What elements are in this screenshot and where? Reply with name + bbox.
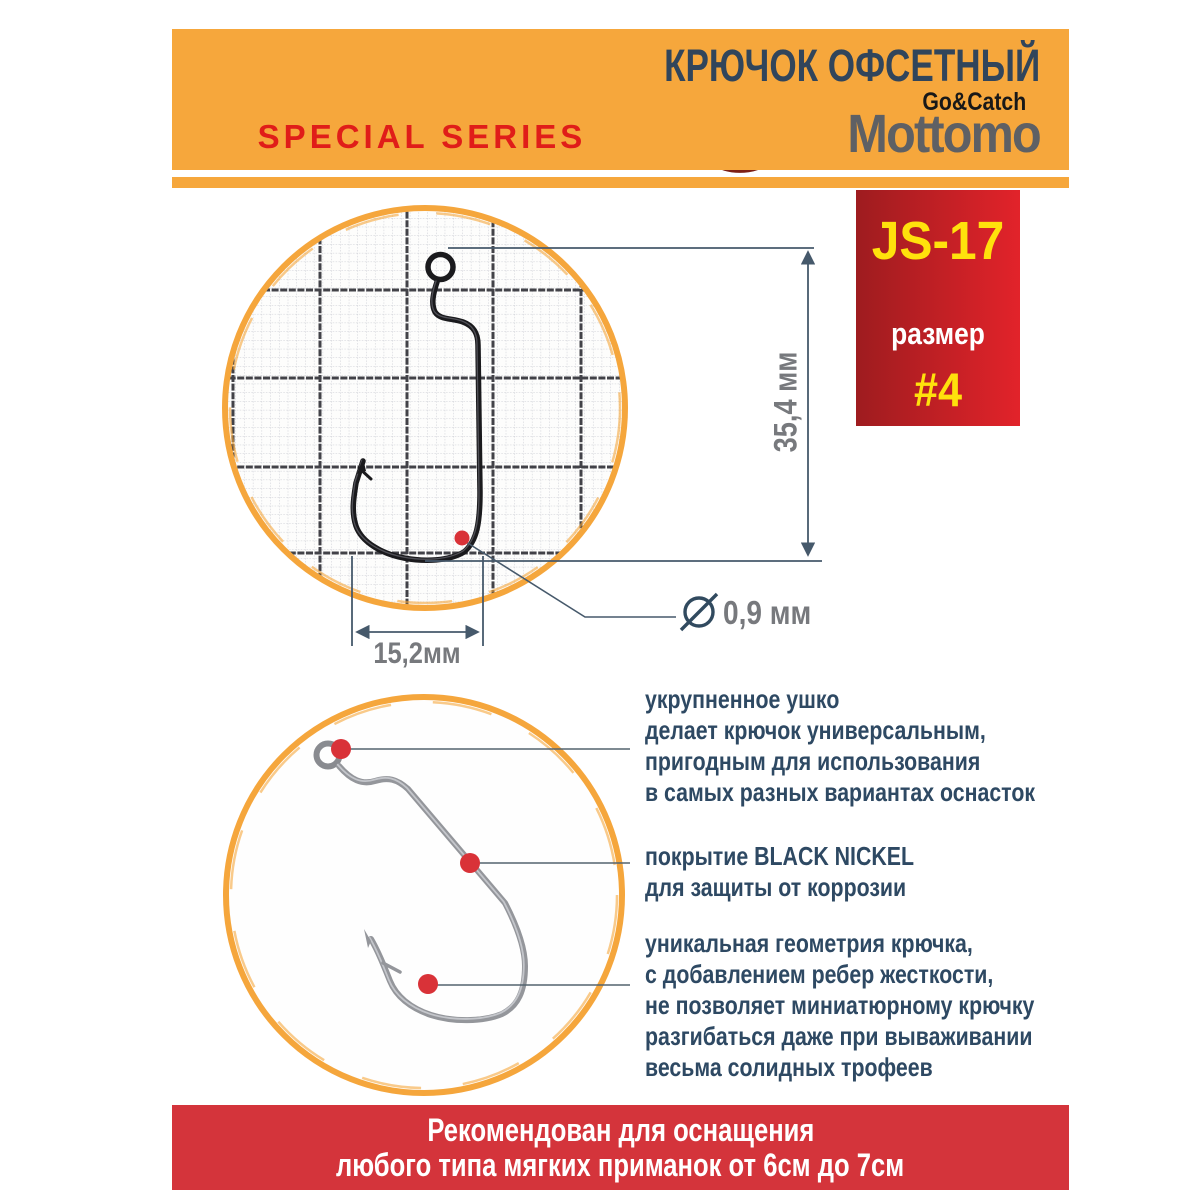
wire-diameter-marker-dot bbox=[455, 531, 470, 546]
diameter-measurement: 0,9 мм bbox=[723, 594, 811, 632]
recommendation-line2: любого типа мягких приманок от 6см до 7с… bbox=[336, 1148, 904, 1183]
feature-note-geometry: уникальная геометрия крючка, с добавлени… bbox=[645, 928, 1120, 1083]
hook-photo-graph-paper bbox=[220, 203, 630, 613]
product-title: КРЮЧОК ОФСЕТНЫЙ bbox=[664, 40, 1040, 92]
model-number: JS-17 bbox=[863, 210, 1014, 272]
size-value: #4 bbox=[863, 362, 1014, 417]
feature-note-coating: покрытие BLACK NICKEL для защиты от корр… bbox=[645, 841, 973, 903]
length-measurement: 35,4 мм bbox=[768, 352, 805, 453]
callout-dot-geometry bbox=[418, 974, 438, 994]
hook-photo-features bbox=[226, 697, 630, 1093]
model-size-badge: JS-17 размер #4 bbox=[856, 190, 1020, 426]
feature-note-eye: укрупненное ушко делает крючок универсал… bbox=[645, 684, 1121, 808]
diameter-icon bbox=[681, 594, 717, 630]
brand-logo-text: Mottomo bbox=[847, 103, 1040, 165]
recommendation-line1: Рекомендован для оснащения bbox=[427, 1113, 814, 1148]
series-label: SPECIAL SERIES bbox=[172, 118, 672, 156]
header-bar-strip bbox=[172, 177, 1069, 188]
width-measurement: 15,2мм bbox=[332, 637, 502, 671]
size-label: размер bbox=[868, 316, 1007, 352]
callout-dot-eye bbox=[331, 739, 351, 759]
callout-dot-coating bbox=[460, 853, 480, 873]
recommendation-banner: Рекомендован для оснащения любого типа м… bbox=[172, 1105, 1069, 1190]
